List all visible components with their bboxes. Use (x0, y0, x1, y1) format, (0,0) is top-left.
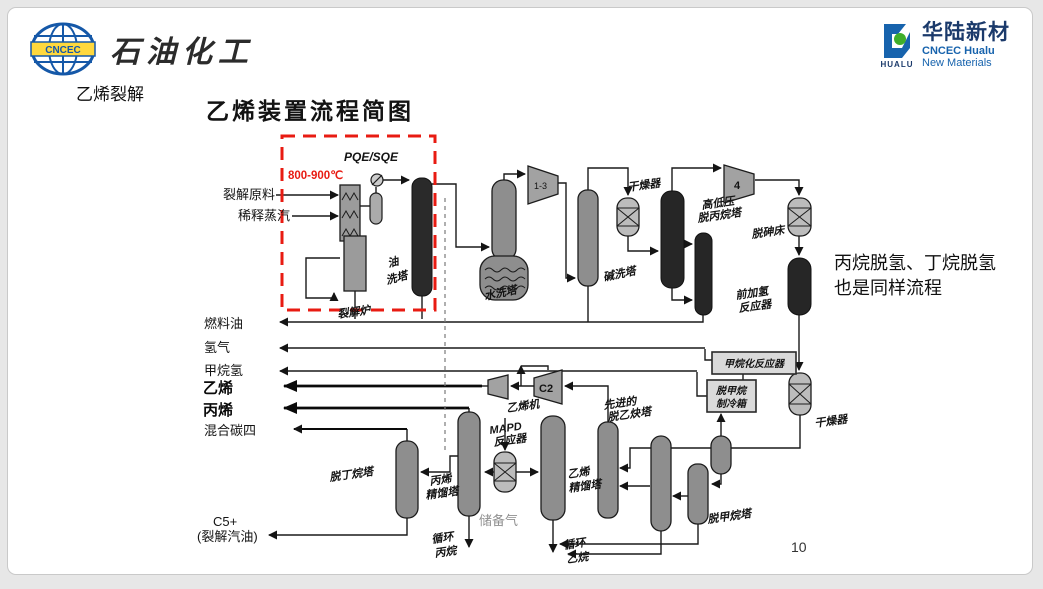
methanation-label: 甲烷化反应器 (724, 358, 786, 370)
recycle-propane-label-line2: 丙烷 (434, 544, 460, 560)
temperature-label: 800-900℃ (288, 169, 343, 182)
demethanizer-column (688, 464, 708, 524)
demethanizer-label: 脱甲烷塔 (706, 507, 754, 526)
cracking-furnace (340, 185, 366, 291)
coldbox-label-line2: 制冷箱 (716, 398, 748, 410)
compressor-4-label: 4 (734, 180, 741, 192)
section-label: 乙烯裂解 (76, 80, 144, 105)
caustic-wash-column (578, 190, 598, 286)
product-label-pygas: (裂解汽油) (197, 529, 258, 544)
product-label-methane-h2: 甲烷氢 (204, 363, 243, 378)
hualu-en-line1: CNCEC Hualu (922, 46, 1010, 58)
deacetylene-column (598, 422, 618, 518)
recycle-ethane-label-line1: 循环 (563, 536, 589, 552)
c2-compressor-label: C2 (539, 383, 553, 395)
oil-wash-label-line1: 油 (386, 254, 402, 270)
recycle-ethane-label-line2: 乙烷 (566, 550, 592, 566)
hualu-en-line2: New Materials (922, 58, 1010, 70)
propylene-fractionator-column (458, 412, 480, 516)
ethylene-col-label-line1: 乙烯 (567, 465, 593, 481)
brand-name: 石油化工 (110, 27, 254, 71)
recycle-propane-label-line1: 循环 (431, 530, 457, 546)
debutanizer-label: 脱丁烷塔 (328, 465, 376, 484)
hualu-logo: HUALU 华陆新材 CNCEC Hualu New Materials (878, 22, 1010, 69)
hp-depropanizer-column (661, 191, 684, 288)
process-flow-diagram: 1-3 4 C2 (186, 116, 866, 576)
oil-wash-label-line2: 洗塔 (384, 268, 411, 287)
feed-label-dilution-steam: 稀释蒸汽 (238, 208, 290, 223)
hualu-word: HUALU (881, 60, 914, 69)
furnace-label: 裂解炉 (337, 303, 373, 321)
dryer-top-label: 干燥器 (627, 176, 663, 194)
quench-section (344, 236, 366, 291)
pqe-sqe-exchanger (370, 174, 383, 224)
front-hydrogenation-reactor (788, 258, 811, 315)
cncec-brand: CNCEC 石油化工 (30, 22, 254, 76)
coldbox-label-line1: 脱甲烷 (715, 385, 748, 397)
reserve-gas-label: 储备气 (479, 513, 518, 528)
ethylene-fractionator-column (541, 416, 565, 520)
product-label-propylene: 丙烯 (203, 401, 233, 419)
compressor-1-3-label: 1-3 (534, 181, 547, 191)
product-label-mixed-c4: 混合碳四 (204, 423, 256, 438)
dryer-right-label: 干燥器 (814, 412, 850, 430)
reflux-drum-vessel (711, 436, 731, 474)
product-label-ethylene: 乙烯 (203, 379, 233, 397)
lp-depropanizer-column (695, 233, 712, 315)
dryer-right-vessel (789, 373, 811, 415)
hualu-logo-icon (878, 22, 916, 60)
bold-product-lines (284, 386, 482, 429)
screenshot-root: { "header": { "left_logo": { "banner": "… (0, 0, 1043, 589)
dryer-top-vessel (617, 198, 639, 236)
charge-gas-compressor: 1-3 (528, 166, 558, 204)
product-label-hydrogen: 氢气 (204, 340, 230, 355)
dearsenic-label: 脱砷床 (750, 223, 787, 241)
feed-label-cracking-feedstock: 裂解原料 (223, 187, 275, 202)
mapd-reactor-vessel (494, 452, 516, 492)
slide-canvas: CNCEC 石油化工 HUALU 华陆新材 CNCEC Hualu New Ma… (7, 7, 1033, 575)
ethylene-machine-compressor (488, 375, 508, 399)
oil-wash-label: 油 洗塔 (380, 253, 411, 287)
product-label-fuel-oil: 燃料油 (204, 316, 243, 331)
pqe-sqe-label: PQE/SQE (344, 150, 399, 164)
dearsenic-bed-vessel (788, 198, 811, 236)
deethanizer-column (651, 436, 671, 531)
product-label-c5: C5+ (213, 514, 237, 529)
cncec-banner-text: CNCEC (45, 45, 81, 56)
ethylene-machine-label: 乙烯机 (506, 397, 541, 415)
cncec-globe-logo-icon: CNCEC (30, 22, 96, 76)
water-wash-column (480, 180, 528, 300)
caustic-wash-label: 碱洗塔 (602, 264, 639, 284)
oil-wash-column (412, 178, 432, 296)
debutanizer-column (396, 441, 418, 518)
hualu-cn-name: 华陆新材 (922, 22, 1010, 44)
